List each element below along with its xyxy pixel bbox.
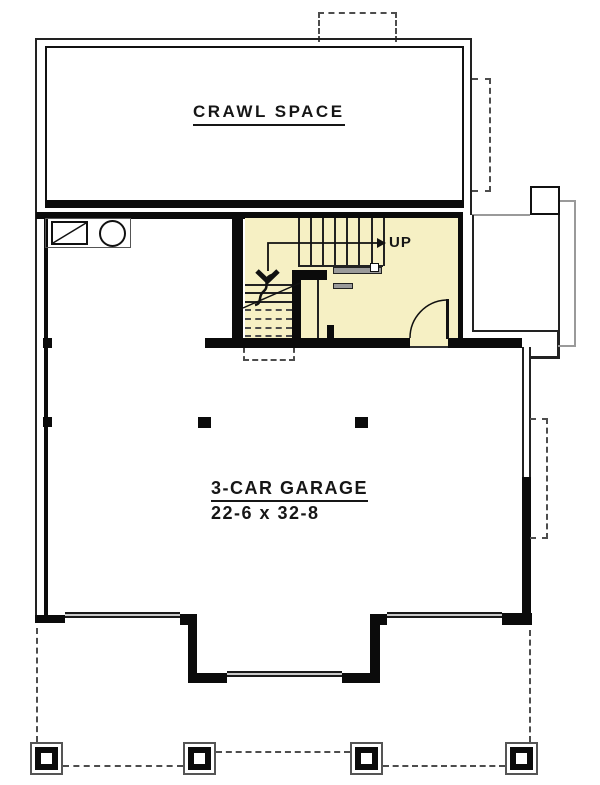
- stair-handrail: [333, 283, 353, 289]
- garage-door-opening-3: [387, 612, 502, 618]
- floor-plan: CRAWL SPACE UP 3-CAR GARAGE 22-6 x 32-8: [0, 0, 600, 785]
- stairs-up-label: UP: [389, 234, 412, 251]
- roof-overhang-line: [574, 200, 576, 347]
- garage-door-opening-2: [227, 671, 342, 677]
- wall-corner: [35, 615, 65, 623]
- roof-overhang-line: [558, 345, 576, 347]
- stair-tread: [245, 301, 292, 303]
- door-threshold: [410, 338, 448, 348]
- wall-segment: [370, 615, 380, 683]
- stair-tread: [346, 218, 348, 266]
- stair-tread: [371, 218, 373, 266]
- crawl-space-label: CRAWL SPACE: [193, 102, 345, 126]
- stair-tread: [358, 218, 360, 266]
- stoop-bottom-edge: [472, 330, 560, 332]
- stair-hall-floor: [245, 218, 458, 338]
- stair-tread: [310, 218, 312, 266]
- wall-segment: [36, 38, 472, 40]
- wall-segment: [472, 215, 474, 332]
- porch-edge-dashed: [216, 751, 350, 753]
- wall-segment: [45, 200, 464, 208]
- wall-corner: [370, 614, 387, 625]
- garage-back-wall: [448, 338, 522, 348]
- wall-segment: [35, 38, 37, 623]
- wall-segment: [522, 347, 524, 477]
- wall-stub: [43, 338, 52, 348]
- stair-tread: [245, 284, 292, 286]
- porch-edge-dashed: [36, 628, 38, 742]
- stair-tread-hidden: [245, 318, 292, 320]
- porch-post-core: [361, 753, 372, 764]
- stair-tread: [245, 292, 292, 294]
- dashed-bay-outline: [472, 78, 491, 192]
- wall-corner: [502, 613, 532, 625]
- stair-tread: [334, 218, 336, 266]
- porch-edge-dashed: [63, 765, 183, 767]
- porch-post-core: [194, 753, 205, 764]
- interior-wall: [292, 270, 301, 338]
- garage-back-wall: [205, 338, 410, 348]
- porch-post-core: [516, 753, 527, 764]
- garage-label: 3-CAR GARAGE: [211, 478, 368, 502]
- dashed-chimney-outline: [530, 418, 548, 539]
- water-heater-symbol: [99, 220, 126, 247]
- stoop-landing: [530, 186, 560, 215]
- furnace-symbol: [51, 221, 88, 245]
- stair-hall-right-wall: [458, 218, 463, 338]
- stoop-step: [531, 356, 560, 359]
- porch-edge-dashed: [383, 765, 505, 767]
- stair-tread: [383, 218, 385, 266]
- porch-post-core: [41, 753, 52, 764]
- porch-edge-dashed: [529, 630, 531, 742]
- porch-post: [505, 742, 538, 775]
- stoop-right-edge: [558, 215, 560, 332]
- porch-post: [30, 742, 63, 775]
- wall-stub: [43, 417, 52, 427]
- door-jamb: [327, 325, 334, 338]
- interior-wall-line: [317, 280, 319, 338]
- stair-hall-left-wall: [232, 218, 243, 338]
- garage-dimensions: 22-6 x 32-8: [211, 503, 320, 524]
- interior-wall: [292, 270, 327, 280]
- garage-door-opening-1: [65, 612, 180, 618]
- stair-tread-hidden: [245, 327, 292, 329]
- stair-tread-hidden: [245, 335, 292, 337]
- wall-segment: [188, 673, 227, 683]
- stair-tread: [298, 218, 300, 266]
- stair-tread: [322, 218, 324, 266]
- porch-post: [183, 742, 216, 775]
- porch-post: [350, 742, 383, 775]
- stoop-edge: [472, 214, 530, 216]
- structural-post: [355, 417, 368, 428]
- dashed-stair-outline: [243, 348, 295, 361]
- newel-post: [370, 263, 379, 272]
- structural-post: [198, 417, 211, 428]
- stair-tread-hidden: [245, 309, 292, 311]
